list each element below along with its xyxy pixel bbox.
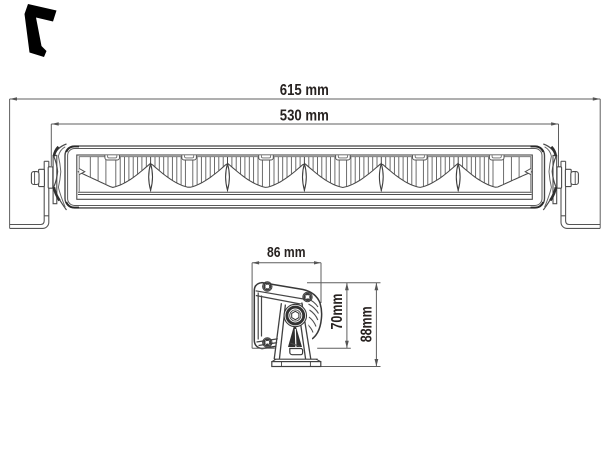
svg-text:70mm: 70mm	[329, 294, 346, 330]
svg-text:530 mm: 530 mm	[280, 108, 329, 125]
svg-text:88mm: 88mm	[358, 306, 375, 342]
svg-text:615 mm: 615 mm	[280, 82, 329, 99]
svg-text:86 mm: 86 mm	[267, 245, 306, 261]
